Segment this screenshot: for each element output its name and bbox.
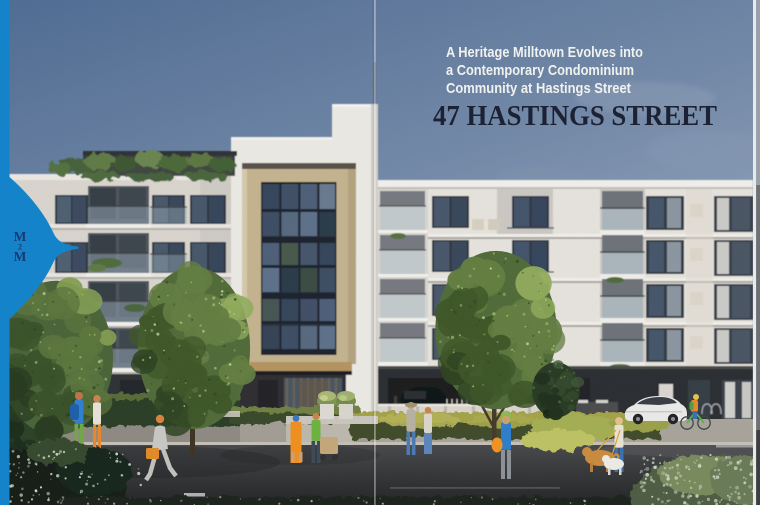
svg-text:Community at Hastings Street: Community at Hastings Street — [446, 80, 631, 97]
svg-text:a Contemporary Condominium: a Contemporary Condominium — [446, 62, 634, 79]
svg-text:47 HASTINGS STREET: 47 HASTINGS STREET — [433, 101, 717, 132]
svg-text:A Heritage Milltown Evolves in: A Heritage Milltown Evolves into — [446, 44, 643, 61]
svg-text:M: M — [14, 249, 27, 264]
